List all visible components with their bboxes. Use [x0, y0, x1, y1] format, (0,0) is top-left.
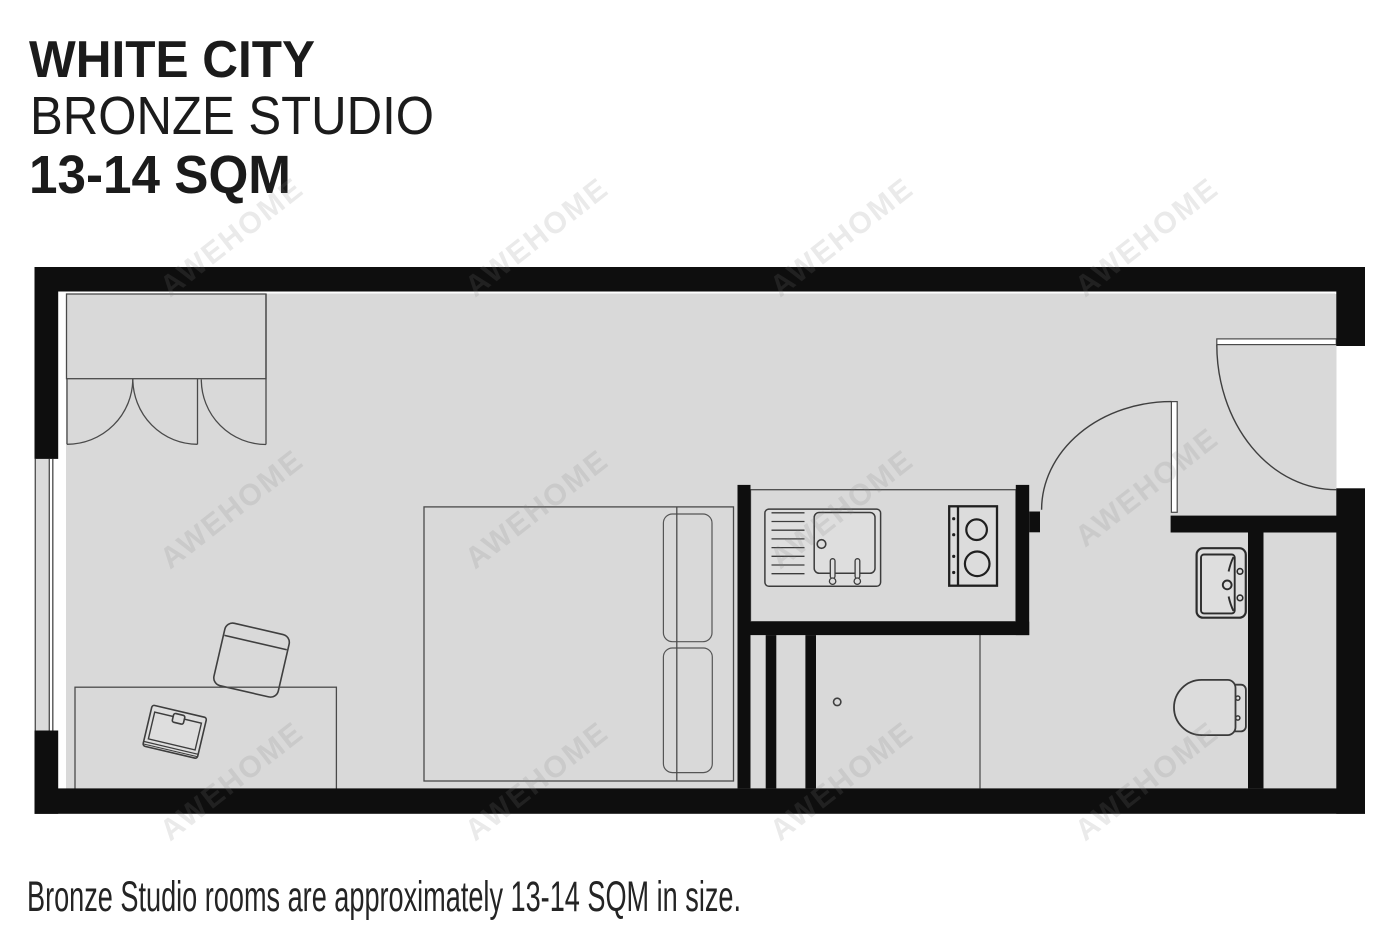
- svg-text:13-14 SQM: 13-14 SQM: [29, 145, 291, 205]
- svg-text:Bronze Studio rooms are approx: Bronze Studio rooms are approximately 13…: [27, 873, 741, 921]
- svg-text:WHITE CITY: WHITE CITY: [29, 31, 315, 89]
- svg-text:BRONZE STUDIO: BRONZE STUDIO: [30, 86, 434, 146]
